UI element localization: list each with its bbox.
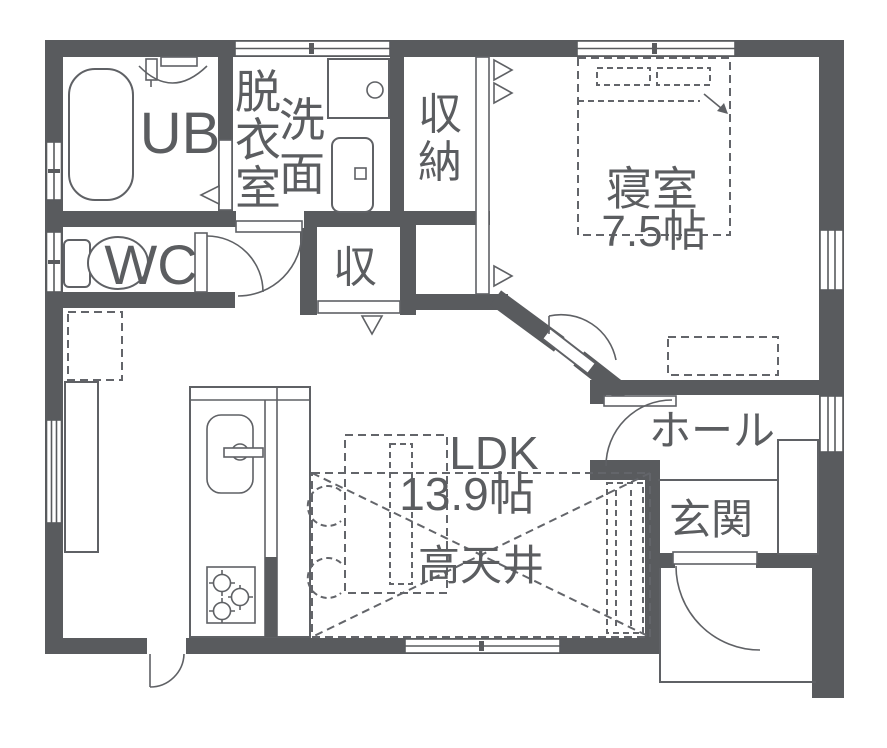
svg-text:面: 面: [279, 148, 325, 200]
toilet-tank: [64, 240, 90, 287]
room-size-ldk: 13.9帖: [399, 468, 535, 520]
bathtub: [69, 69, 133, 200]
pillow: [657, 68, 710, 85]
dresser: [668, 337, 778, 375]
washroom-fixtures: [328, 59, 389, 212]
svg-text:収: 収: [418, 90, 462, 139]
svg-text:衣: 衣: [235, 114, 281, 166]
window-right-hall: [820, 396, 843, 452]
pillow: [597, 68, 650, 85]
side-counter: [65, 382, 98, 552]
washbasin-counter: [328, 59, 389, 118]
kitchen-wall-stub: [265, 557, 277, 637]
svg-text:洗: 洗: [279, 94, 325, 146]
floorplan-page: UB 脱 衣 室 洗 面 収 納 WC 収 寝室 7.5帖 ホール 玄関 LDK…: [0, 0, 887, 748]
wall-entrance-bottom-right: [756, 553, 816, 568]
shoe-cabinet: [778, 440, 818, 554]
room-feature-high-ceiling: 高天井: [418, 542, 544, 589]
swing-door-wc: [195, 233, 263, 292]
room-label-washroom: 洗 面: [279, 94, 325, 200]
refrigerator-space: [68, 312, 122, 380]
back-door-kitchen: [147, 637, 186, 687]
gas-stove: [207, 567, 255, 623]
room-label-wc: WC: [104, 233, 197, 296]
arrow-head: [717, 103, 728, 114]
svg-text:室: 室: [235, 162, 281, 214]
wall-closet2-bottom: [400, 294, 508, 310]
window-bottom-ldk: [405, 639, 560, 653]
washing-machine: [332, 138, 373, 212]
bath-counter: [139, 57, 207, 87]
closet-sliding-partition: [476, 57, 512, 294]
kitchen-fixtures: [65, 382, 310, 637]
chair: [308, 486, 341, 526]
svg-text:納: 納: [418, 138, 462, 187]
room-label-storage-closet: 収 納: [418, 90, 462, 187]
room-label-entrance: 玄関: [669, 496, 753, 543]
window-left-wc: [47, 232, 62, 292]
entrance-porch: [660, 568, 816, 682]
room-label-small-closet: 収: [333, 243, 377, 292]
room-label-hall: ホール: [649, 407, 775, 454]
wall-washroom-closet: [390, 57, 404, 211]
closet-sliding-bottom: [318, 301, 400, 334]
window-left-bath: [47, 142, 62, 200]
window-right-bedroom: [820, 230, 843, 290]
room-size-bedroom: 7.5帖: [601, 207, 706, 256]
tv-board: [607, 483, 643, 633]
window-top-washroom: [235, 41, 390, 56]
wall-diagonal-upper: [503, 303, 552, 339]
swing-door-bedroom: [547, 315, 616, 368]
svg-text:脱: 脱: [235, 66, 281, 118]
wall-bath-bottom: [63, 211, 403, 227]
room-label-dressing-room: 脱 衣 室: [235, 66, 281, 214]
room-label-ub: UB: [140, 101, 221, 166]
window-top-bedroom: [577, 41, 735, 56]
entrance-door: [673, 552, 760, 650]
floorplan-drawing: UB 脱 衣 室 洗 面 収 納 WC 収 寝室 7.5帖 ホール 玄関 LDK…: [0, 0, 887, 748]
window-left-ldk: [47, 420, 62, 523]
